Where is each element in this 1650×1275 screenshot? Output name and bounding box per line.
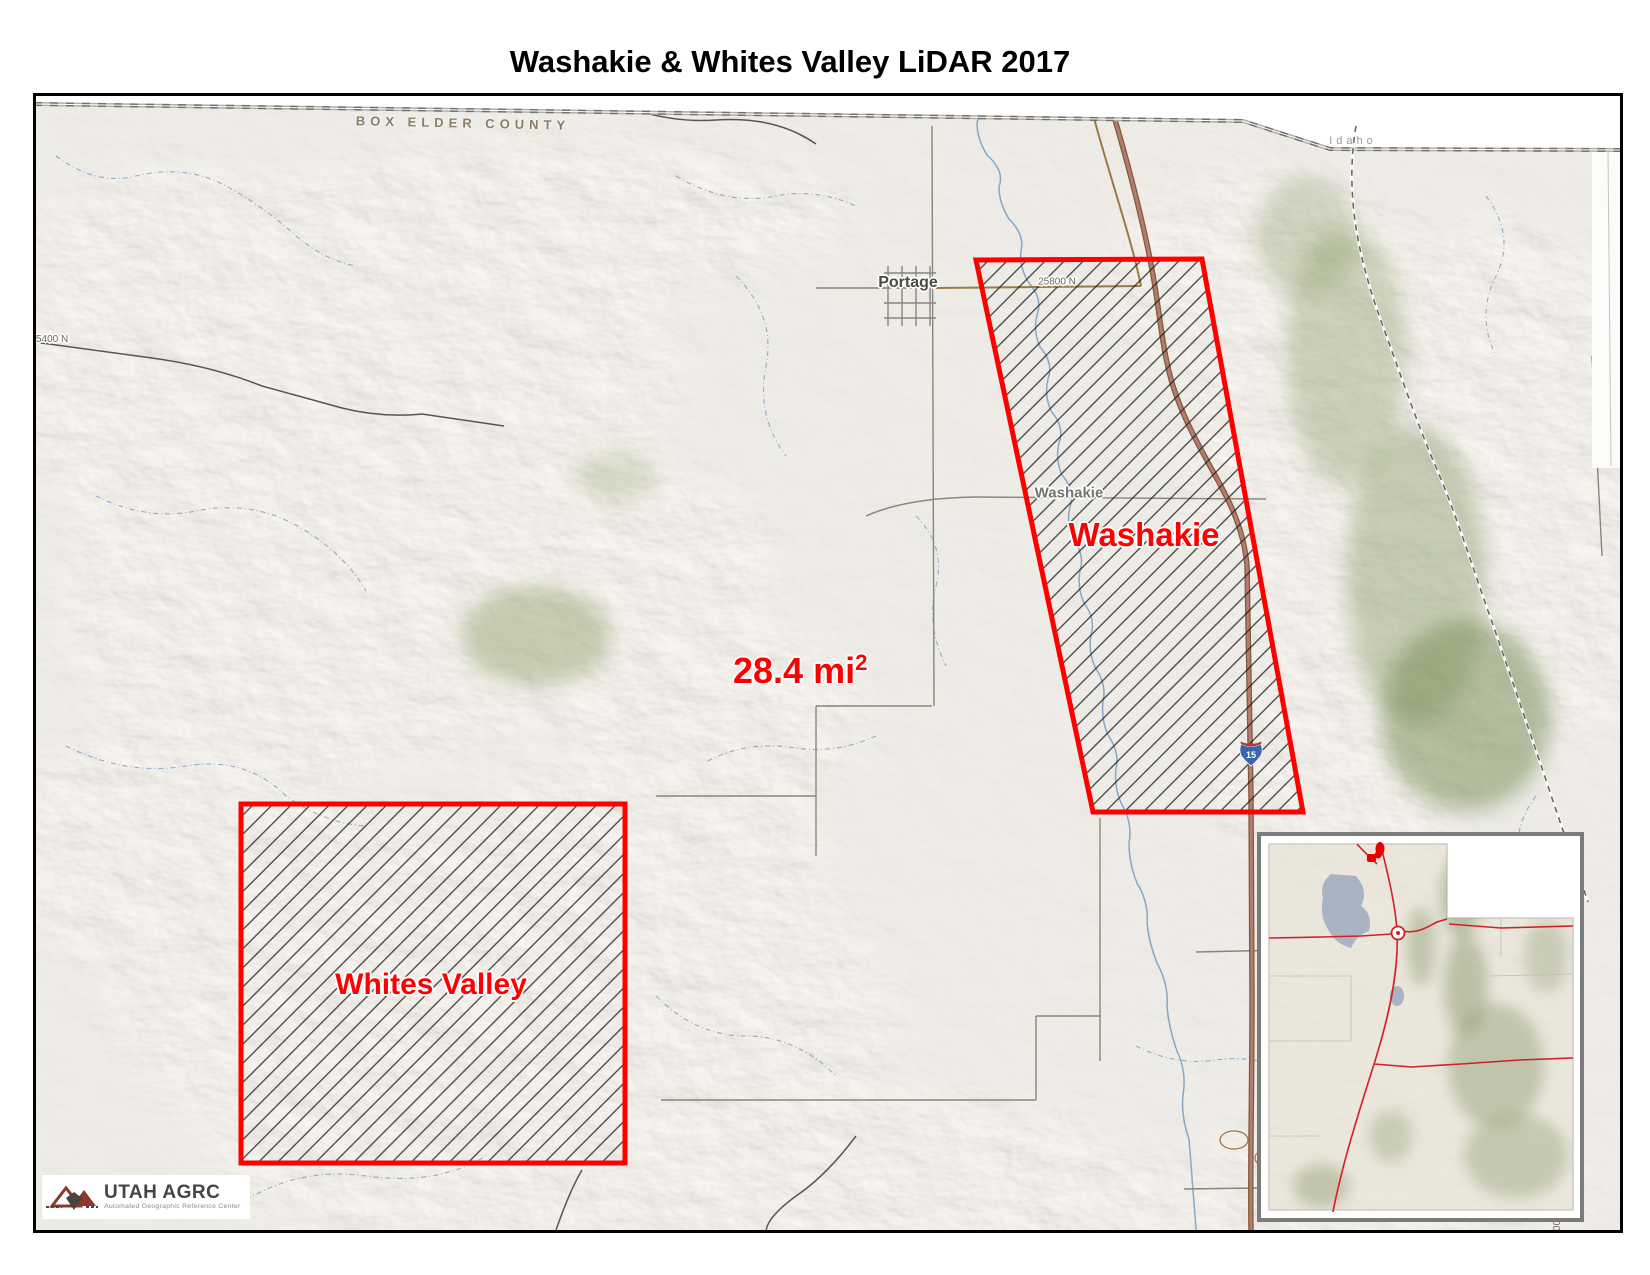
area-value: 28.4 mi xyxy=(733,650,855,691)
region-label-whites-valley: Whites Valley xyxy=(335,968,527,1002)
area-exponent: 2 xyxy=(855,650,867,675)
utah-locator-inset xyxy=(1257,832,1584,1222)
road-label-5400n: 5400 N xyxy=(36,334,68,345)
area-label: 28.4 mi2 xyxy=(733,650,868,692)
logo-subtitle: Automated Geographic Reference Center xyxy=(104,1203,241,1210)
agrc-mountain-icon xyxy=(46,1180,98,1214)
town-label-washakie: Washakie xyxy=(1035,485,1104,502)
map-canvas: 15 BOX ELDER COUNTY Idaho Portage Washak… xyxy=(33,93,1623,1233)
utah-inset-graphics xyxy=(1261,836,1580,1218)
town-label-portage: Portage xyxy=(878,274,938,292)
region-label-washakie: Washakie xyxy=(1068,516,1219,554)
road-label-25800n: 25800 N xyxy=(1038,277,1076,288)
no-data-strip xyxy=(1592,148,1620,468)
page-title: Washakie & Whites Valley LiDAR 2017 xyxy=(0,44,1580,80)
slc-hub-symbol xyxy=(1392,927,1405,940)
state-label-idaho: Idaho xyxy=(1329,135,1377,147)
agency-logo: UTAH AGRC Automated Geographic Reference… xyxy=(42,1175,250,1219)
logo-title: UTAH AGRC xyxy=(104,1183,241,1203)
svg-text:15: 15 xyxy=(1246,750,1256,760)
utah-terrain xyxy=(1269,844,1573,1210)
